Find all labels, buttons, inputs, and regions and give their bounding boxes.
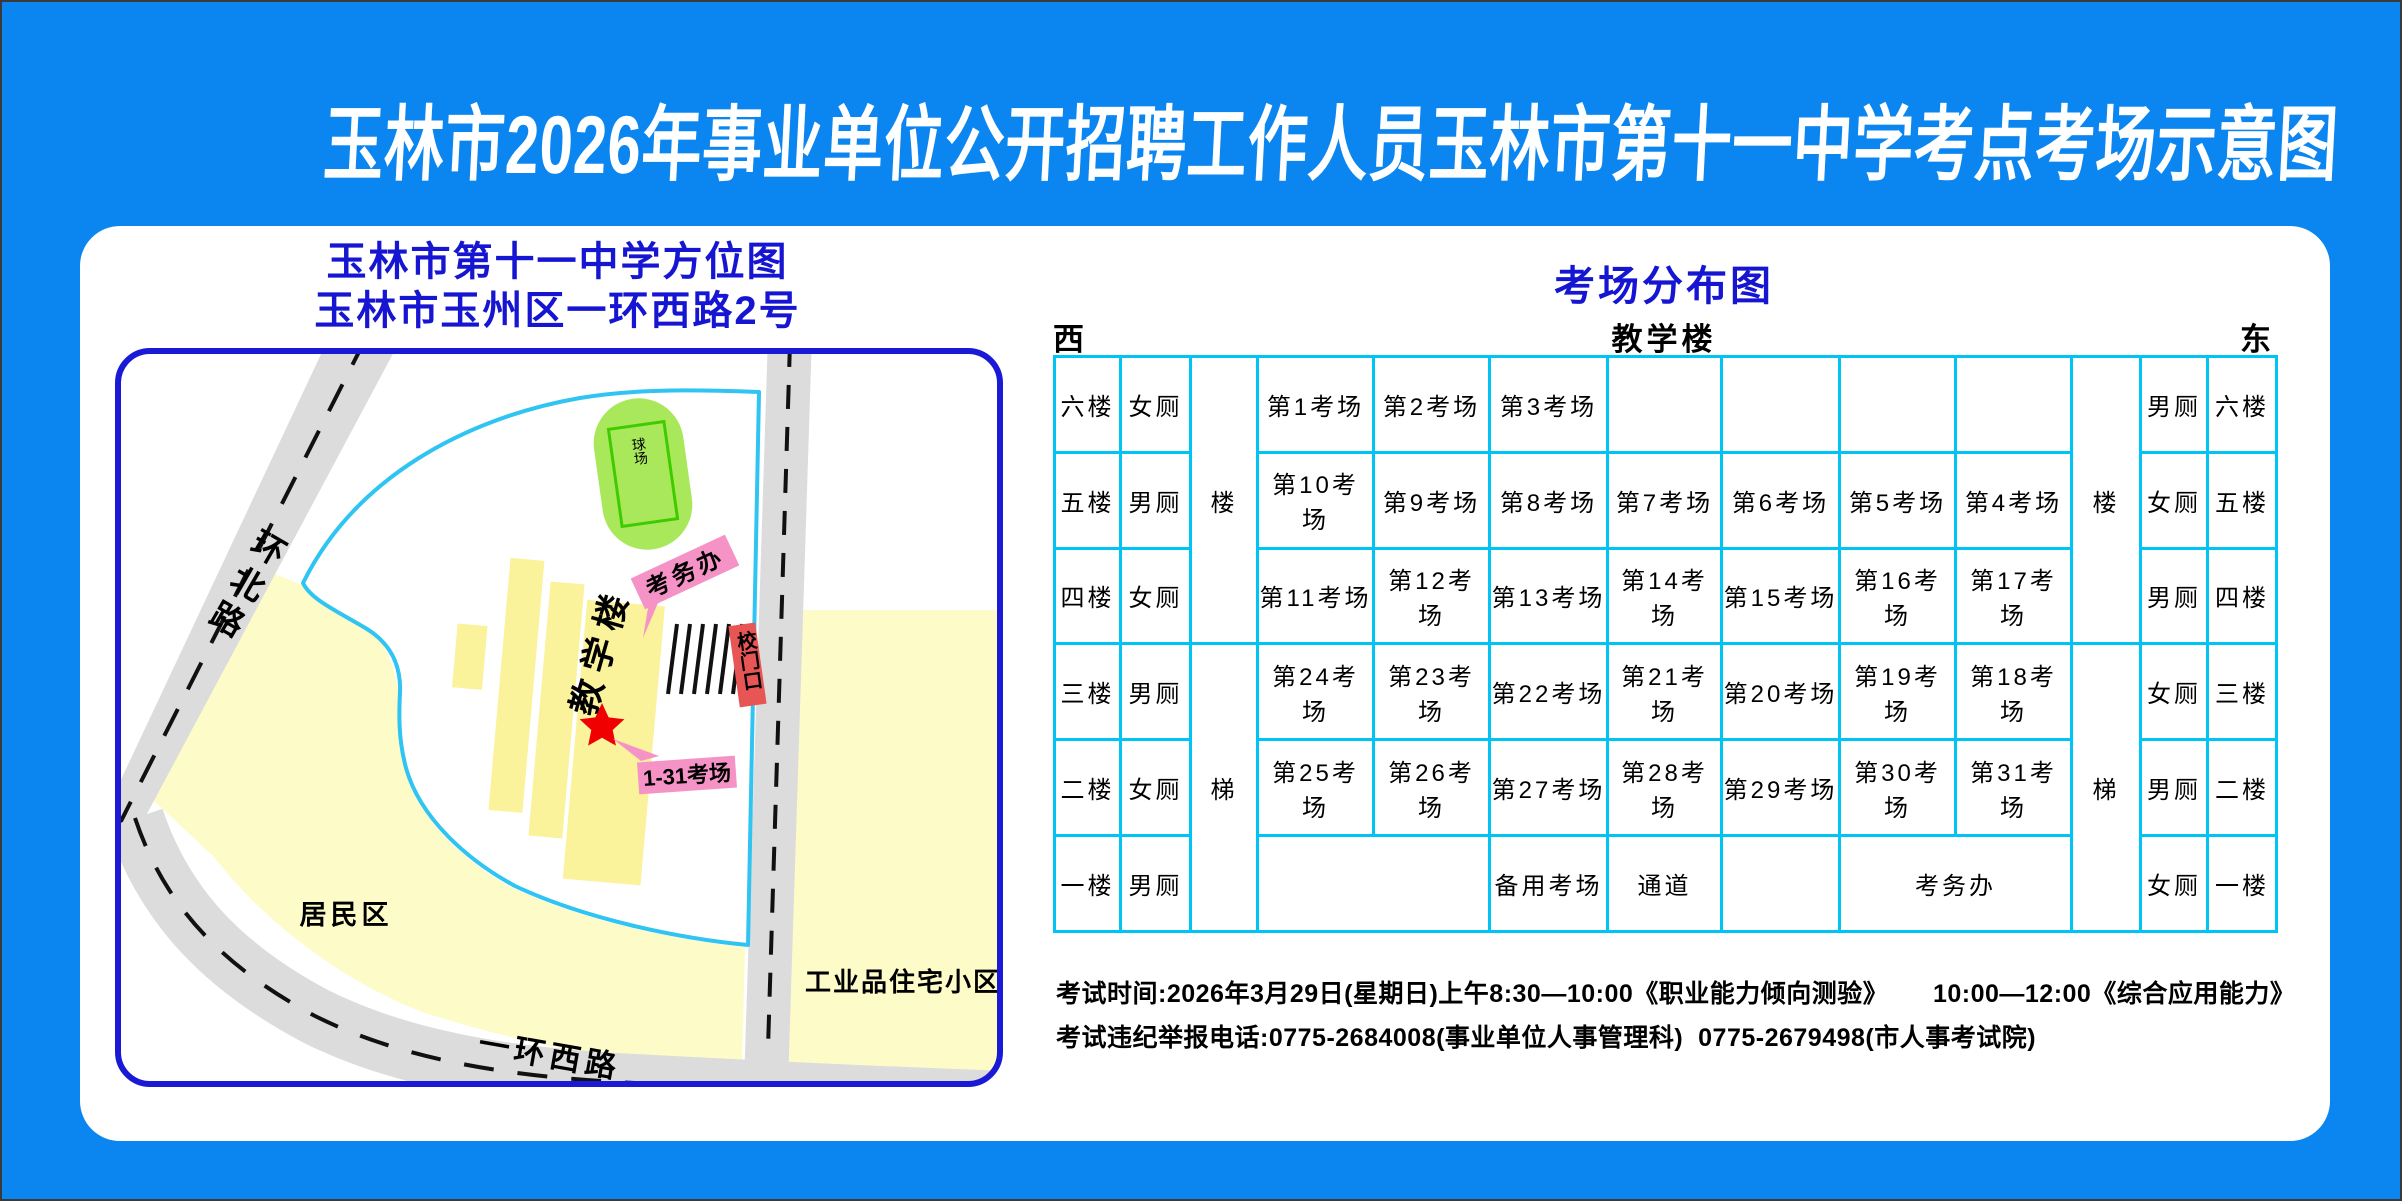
table-cell: 楼	[2072, 357, 2141, 644]
table-cell: 女厕	[1121, 357, 1191, 453]
table-cell: 第22考场	[1490, 644, 1608, 740]
table-cell: 通道	[1608, 835, 1722, 931]
table-cell	[1840, 357, 1956, 453]
table-cell: 第4考场	[1956, 452, 2072, 548]
table-cell: 六楼	[1055, 357, 1121, 453]
table-cell: 梯	[2072, 644, 2141, 931]
table-cell	[1722, 835, 1840, 931]
table-cell	[1956, 357, 2072, 453]
table-cell: 第28考场	[1608, 740, 1722, 836]
table-cell: 梯	[1191, 644, 1258, 931]
table-cell: 第30考场	[1840, 740, 1956, 836]
table-cell: 第17考场	[1956, 548, 2072, 644]
poster: 玉林市2026年事业单位公开招聘工作人员玉林市第十一中学考点考场示意图 玉林市第…	[0, 0, 2402, 1201]
exam-table: 六楼女厕楼第1考场第2考场第3考场楼男厕六楼五楼男厕第10考场第9考场第8考场第…	[1053, 355, 2278, 933]
table-cell: 第29考场	[1722, 740, 1840, 836]
table-cell: 楼	[1191, 357, 1258, 644]
table-cell: 六楼	[2208, 357, 2277, 453]
table-cell: 备用考场	[1490, 835, 1608, 931]
table-cell: 第5考场	[1840, 452, 1956, 548]
table-cell: 男厕	[1121, 835, 1191, 931]
table-cell: 一楼	[2208, 835, 2277, 931]
table-cell: 第18考场	[1956, 644, 2072, 740]
table-cell: 女厕	[2141, 452, 2208, 548]
table-cell: 二楼	[1055, 740, 1121, 836]
table-cell: 第7考场	[1608, 452, 1722, 548]
table-cell: 一楼	[1055, 835, 1121, 931]
table-cell: 第31考场	[1956, 740, 2072, 836]
table-cell: 三楼	[2208, 644, 2277, 740]
table-cell: 男厕	[2141, 548, 2208, 644]
direction-west: 西	[1053, 314, 1088, 359]
table-cell	[1722, 357, 1840, 453]
table-cell: 第8考场	[1490, 452, 1608, 548]
table-cell: 女厕	[2141, 835, 2208, 931]
table-cell: 女厕	[1121, 740, 1191, 836]
table-cell: 第2考场	[1374, 357, 1490, 453]
table-cell: 第26考场	[1374, 740, 1490, 836]
table-cell: 男厕	[2141, 740, 2208, 836]
map-heading-line1: 玉林市第十一中学方位图	[205, 238, 910, 287]
page-title: 玉林市2026年事业单位公开招聘工作人员玉林市第十一中学考点考场示意图	[321, 78, 2081, 197]
table-cell: 第11考场	[1258, 548, 1374, 644]
table-cell: 第14考场	[1608, 548, 1722, 644]
table-cell: 第15考场	[1722, 548, 1840, 644]
table-cell: 第27考场	[1490, 740, 1608, 836]
table-cell: 三楼	[1055, 644, 1121, 740]
table-cell: 第20考场	[1722, 644, 1840, 740]
table-cell: 第21考场	[1608, 644, 1722, 740]
table-cell: 男厕	[2141, 357, 2208, 453]
industrial-area	[782, 610, 1003, 1085]
map-heading: 玉林市第十一中学方位图 玉林市玉州区一环西路2号	[205, 238, 910, 336]
residential-label: 居民区	[300, 900, 393, 930]
table-cell: 第24考场	[1258, 644, 1374, 740]
table-cell: 男厕	[1121, 452, 1191, 548]
table-cell: 第16考场	[1840, 548, 1956, 644]
table-cell: 第3考场	[1490, 357, 1608, 453]
table-cell	[1608, 357, 1722, 453]
table-cell: 第19考场	[1840, 644, 1956, 740]
exam-time-note: 考试时间:2026年3月29日(星期日)上午8:30—10:00《职业能力倾向测…	[1056, 974, 2295, 1010]
table-cell	[1258, 835, 1490, 931]
table-cell: 五楼	[2208, 452, 2277, 548]
report-phone-note: 考试违纪举报电话:0775-2684008(事业单位人事管理科) 0775-26…	[1056, 1018, 2036, 1054]
table-cell: 四楼	[1055, 548, 1121, 644]
table-cell: 五楼	[1055, 452, 1121, 548]
table-cell: 第13考场	[1490, 548, 1608, 644]
map-heading-line2: 玉林市玉州区一环西路2号	[205, 287, 910, 336]
table-cell: 第23考场	[1374, 644, 1490, 740]
table-cell: 女厕	[1121, 548, 1191, 644]
table-cell: 第6考场	[1722, 452, 1840, 548]
table-cell: 女厕	[2141, 644, 2208, 740]
table-cell: 四楼	[2208, 548, 2277, 644]
table-cell: 男厕	[1121, 644, 1191, 740]
direction-east: 东	[2240, 314, 2275, 359]
campus-map: 球场 教学楼	[115, 348, 1003, 1087]
distribution-heading: 考场分布图	[1053, 252, 2275, 312]
industrial-label: 工业品住宅小区	[805, 967, 1001, 997]
table-cell: 第12考场	[1374, 548, 1490, 644]
table-cell: 二楼	[2208, 740, 2277, 836]
table-cell: 考务办	[1840, 835, 2072, 931]
direction-center: 教学楼	[1612, 314, 1717, 359]
direction-row: 西 教学楼 东	[1053, 314, 2275, 359]
table-cell: 第10考场	[1258, 452, 1374, 548]
table-cell: 第1考场	[1258, 357, 1374, 453]
table-cell: 第9考场	[1374, 452, 1490, 548]
table-cell: 第25考场	[1258, 740, 1374, 836]
